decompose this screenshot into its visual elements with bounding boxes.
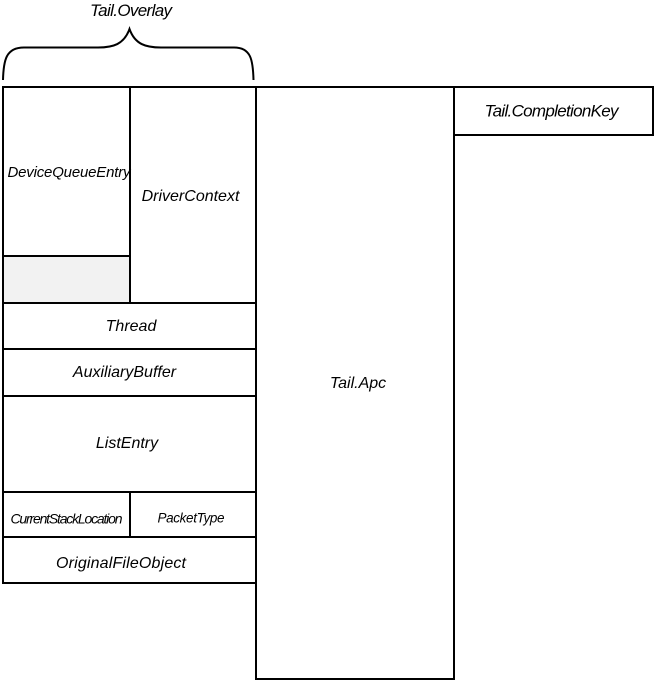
svg-text:Tail.Overlay: Tail.Overlay (90, 1, 174, 20)
svg-text:Tail.Apc: Tail.Apc (330, 375, 386, 392)
svg-text:CurrentStackLocation: CurrentStackLocation (11, 511, 123, 527)
svg-text:ListEntry: ListEntry (96, 435, 159, 452)
svg-text:AuxiliaryBuffer: AuxiliaryBuffer (72, 364, 177, 381)
svg-text:PacketType: PacketType (158, 511, 225, 526)
svg-text:Tail.CompletionKey: Tail.CompletionKey (485, 102, 621, 121)
svg-text:DeviceQueueEntry: DeviceQueueEntry (8, 164, 133, 181)
svg-text:Thread: Thread (106, 318, 158, 335)
svg-text:DriverContext: DriverContext (142, 188, 240, 205)
svg-text:OriginalFileObject: OriginalFileObject (56, 555, 187, 572)
